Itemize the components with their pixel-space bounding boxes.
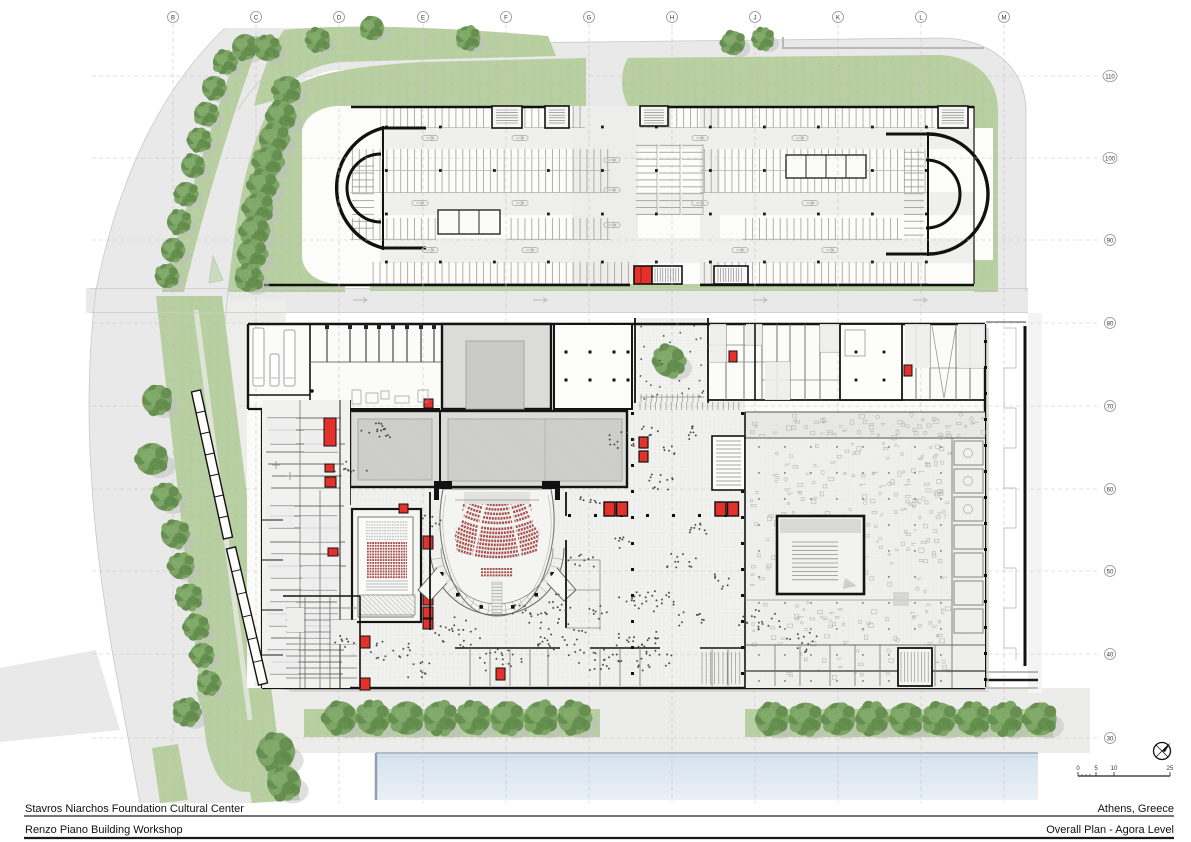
svg-text:90: 90 [1107,238,1114,244]
svg-text:F: F [504,15,508,21]
svg-text:80: 80 [1107,321,1114,327]
svg-text:Renzo Piano Building Workshop: Renzo Piano Building Workshop [25,824,183,836]
svg-text:G: G [587,15,592,21]
svg-text:10: 10 [1111,766,1118,772]
svg-text:Overall Plan - Agora Level: Overall Plan - Agora Level [1046,824,1174,836]
svg-text:B: B [171,15,175,21]
svg-text:H: H [670,15,674,21]
svg-text:Athens, Greece: Athens, Greece [1098,803,1174,815]
svg-text:E: E [421,15,425,21]
svg-text:70: 70 [1107,404,1114,410]
svg-text:C: C [254,15,259,21]
svg-text:60: 60 [1107,487,1114,493]
svg-text:40: 40 [1107,652,1114,658]
svg-text:J: J [754,15,757,21]
svg-text:M: M [1002,15,1007,21]
svg-text:50: 50 [1107,569,1114,575]
svg-text:100: 100 [1105,156,1116,162]
svg-text:K: K [836,15,840,21]
svg-text:D: D [337,15,342,21]
svg-text:30: 30 [1107,736,1114,742]
svg-text:25: 25 [1167,766,1174,772]
svg-text:Stavros Niarchos Foundation Cu: Stavros Niarchos Foundation Cultural Cen… [25,803,244,815]
svg-text:110: 110 [1105,74,1115,80]
